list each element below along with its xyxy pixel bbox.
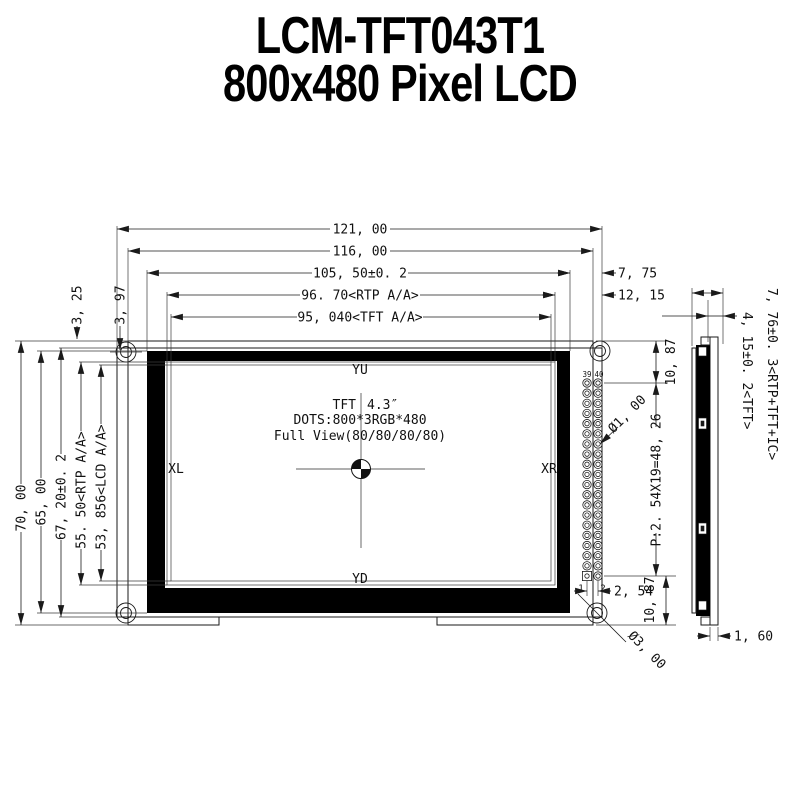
- lcd-datasheet-drawing: LCM-TFT043T1 800x480 Pixel LCD: [0, 0, 800, 800]
- panel-view-angle: Full View(80/80/80/80): [274, 429, 446, 444]
- dim-right-offset-bezel: 7, 75: [618, 267, 657, 282]
- side-bottom-clip: [701, 617, 710, 625]
- electrode-left-label: XL: [168, 462, 184, 477]
- dim-height-lcd-aa: 53, 856<LCD A/A>: [95, 424, 110, 549]
- dim-height-glass: 67, 20±0. 2: [55, 454, 70, 540]
- side-top-clip: [701, 337, 710, 345]
- dim-thickness-pcb: 1, 60: [734, 630, 773, 645]
- dim-mount-hole-dia: Ø3, 00: [625, 629, 669, 673]
- pin1-label: 1: [578, 584, 583, 594]
- side-pcb: [710, 337, 718, 625]
- dim-pin-col-spacing: 2, 54: [614, 585, 653, 600]
- dim-thickness-tft: 4, 15±0. 2<TFT>: [739, 312, 754, 430]
- pin40-label: 40: [594, 370, 604, 379]
- dim-corner-offset2: 3, 97: [114, 285, 129, 324]
- front-view: YU YD XL XR TFT 4.3″ DOTS:800*3RGB*480 F…: [116, 341, 610, 625]
- dim-right-offset-aa: 12, 15: [618, 289, 665, 304]
- panel-size-left: TFT: [333, 398, 357, 413]
- electrode-top-label: YU: [352, 363, 368, 378]
- pin39-label: 39: [582, 370, 591, 379]
- pin2-label: 2: [600, 584, 605, 594]
- dim-pin-pitch: P:2. 54X19=48, 26: [650, 413, 665, 546]
- side-touch-glass: [692, 348, 696, 613]
- panel-dots: DOTS:800*3RGB*480: [293, 413, 426, 428]
- dim-width-rtp-aa: 96. 70<RTP A/A>: [301, 289, 419, 304]
- dim-corner-offset1: 3, 25: [71, 285, 86, 324]
- dim-width-pcb: 116, 00: [333, 245, 388, 260]
- dim-height-module: 65, 00: [35, 479, 50, 526]
- dim-width-tft-aa: 95, 040<TFT A/A>: [297, 311, 422, 326]
- dim-height-pcb: 70, 00: [15, 485, 30, 532]
- electrode-right-label: XR: [541, 462, 557, 477]
- technical-drawing: YU YD XL XR TFT 4.3″ DOTS:800*3RGB*480 F…: [0, 0, 800, 800]
- side-view: 7, 76±0. 3<RTP+TFT+IC> 4, 15±0. 2<TFT> 1…: [692, 288, 779, 645]
- electrode-bottom-label: YD: [352, 572, 368, 587]
- dim-width-module: 105, 50±0. 2: [313, 267, 407, 282]
- side-display-stack: [696, 345, 710, 616]
- dim-pin-hole-dia: Ø1, 00: [606, 393, 650, 437]
- panel-size-right: 4.3″: [367, 398, 398, 413]
- dim-width-total: 121, 00: [333, 223, 388, 238]
- dim-pin-top-offset: 10, 87: [664, 339, 679, 386]
- connector-pin-field: [582, 379, 602, 581]
- dim-thickness-total: 7, 76±0. 3<RTP+TFT+IC>: [764, 288, 779, 460]
- dim-height-rtp-aa: 55. 50<RTP A/A>: [75, 431, 90, 549]
